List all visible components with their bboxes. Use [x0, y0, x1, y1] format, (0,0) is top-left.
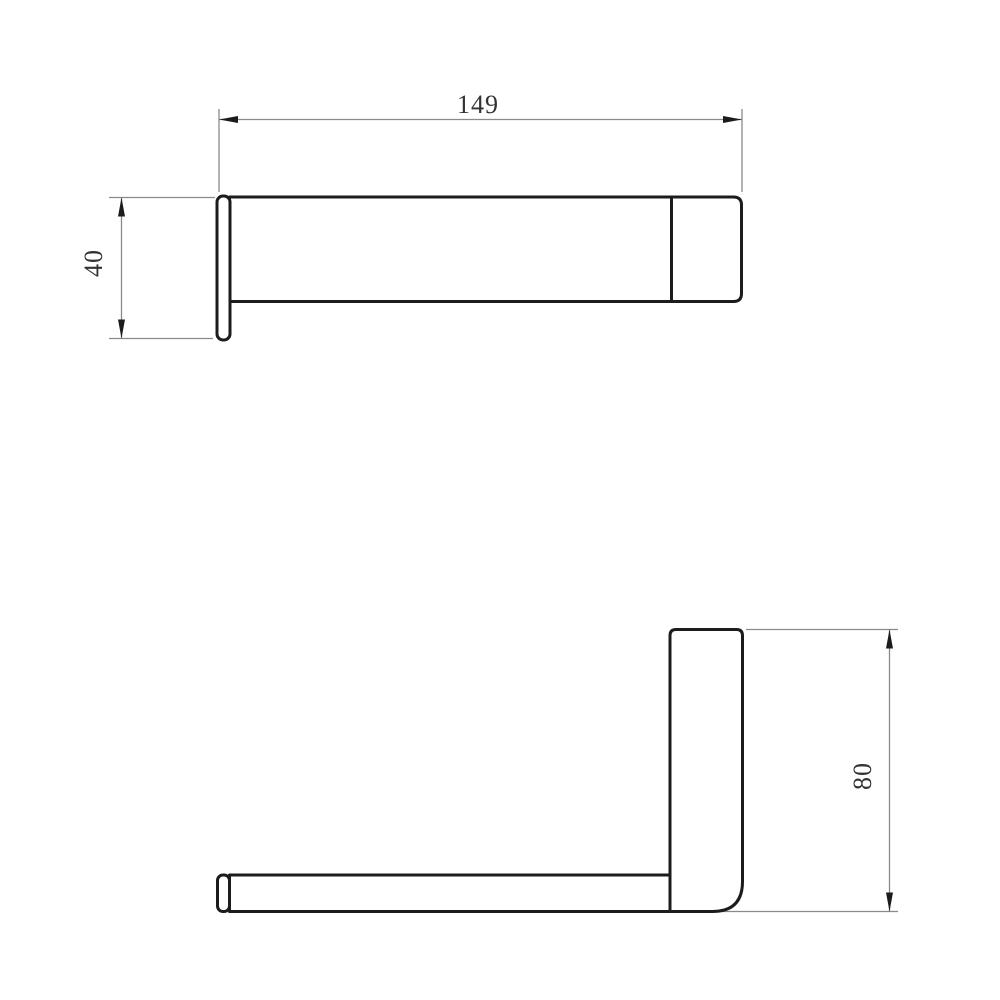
dim-149-arrow-right-icon — [723, 116, 742, 123]
dimension-149: 149 — [219, 90, 742, 192]
side-view-wall-plate — [218, 875, 230, 912]
dim-80-label: 80 — [848, 762, 877, 790]
top-view-wall-plate — [217, 196, 230, 340]
dim-80-arrow-top-icon — [886, 630, 893, 649]
dim-149-arrow-left-icon — [219, 116, 238, 123]
side-view: 80 — [218, 630, 899, 912]
top-view-rail-body — [230, 197, 742, 302]
dim-40-arrow-bottom-icon — [118, 320, 125, 339]
top-view: 149 40 — [79, 90, 742, 340]
dim-80-arrow-bottom-icon — [886, 893, 893, 912]
dim-149-label: 149 — [457, 90, 499, 119]
drawing-page: 149 40 — [0, 0, 1000, 1000]
side-view-rail-profile — [230, 630, 743, 912]
technical-drawing-canvas: 149 40 — [0, 0, 1000, 1000]
dimension-40: 40 — [79, 198, 215, 339]
dim-40-arrow-top-icon — [118, 198, 125, 217]
dim-40-label: 40 — [79, 249, 108, 277]
